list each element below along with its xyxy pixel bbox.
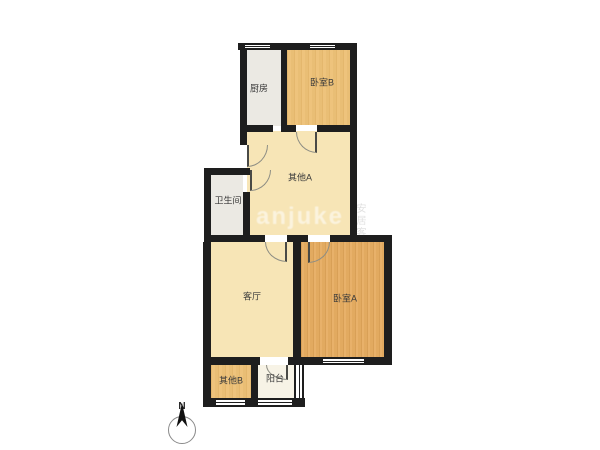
window-bedroom-a-bottom (323, 357, 364, 365)
wall-beda-right (384, 242, 392, 365)
window-balcony-right (294, 365, 304, 398)
window-other-b-bottom (216, 398, 245, 407)
wall-kitchen-divider (281, 50, 287, 125)
wall-bottom-a (203, 398, 216, 407)
wall-bedb-bottom (317, 125, 350, 132)
compass: N (160, 401, 204, 450)
label-living-room: 客厅 (243, 290, 261, 303)
wall-low-band-b (288, 357, 323, 365)
wall-otherb-balcony-div (251, 365, 258, 398)
wall-low-band-c (364, 357, 392, 365)
wall-bath-right-top (243, 168, 250, 172)
label-bedroom-b: 卧室B (310, 76, 334, 89)
wall-bottom-b (245, 398, 258, 407)
watermark-text: anjuke (256, 203, 344, 231)
label-balcony: 阳台 (266, 372, 284, 385)
window-bedroom-b-top (310, 43, 335, 50)
label-other-a: 其他A (288, 171, 312, 184)
floor-plan: 厨房 卧室B 其他A 卫生间 客厅 卧室A 其他B 阳台 anjuke 安居客 … (0, 0, 600, 450)
label-bathroom: 卫生间 (214, 194, 241, 207)
label-kitchen: 厨房 (250, 82, 268, 95)
label-other-b: 其他B (219, 374, 243, 387)
watermark-logo-text: 安居客 (352, 203, 367, 239)
wall-mid-band-b (287, 235, 308, 242)
label-bedroom-a: 卧室A (333, 292, 357, 305)
wall-bottom-c (292, 398, 305, 407)
wall-entry-stub (240, 131, 247, 145)
wall-band-mid (281, 125, 296, 132)
wall-kitchen-left (240, 50, 247, 131)
wall-mid-band-a (204, 235, 265, 242)
wall-low-band-a (211, 357, 260, 365)
wall-bath-left (204, 175, 211, 240)
window-kitchen-top (245, 43, 270, 50)
wall-bath-right (243, 192, 250, 240)
wall-living-beda-div (293, 242, 301, 365)
window-balcony-bottom (258, 398, 292, 407)
wall-lower-left (203, 242, 211, 407)
